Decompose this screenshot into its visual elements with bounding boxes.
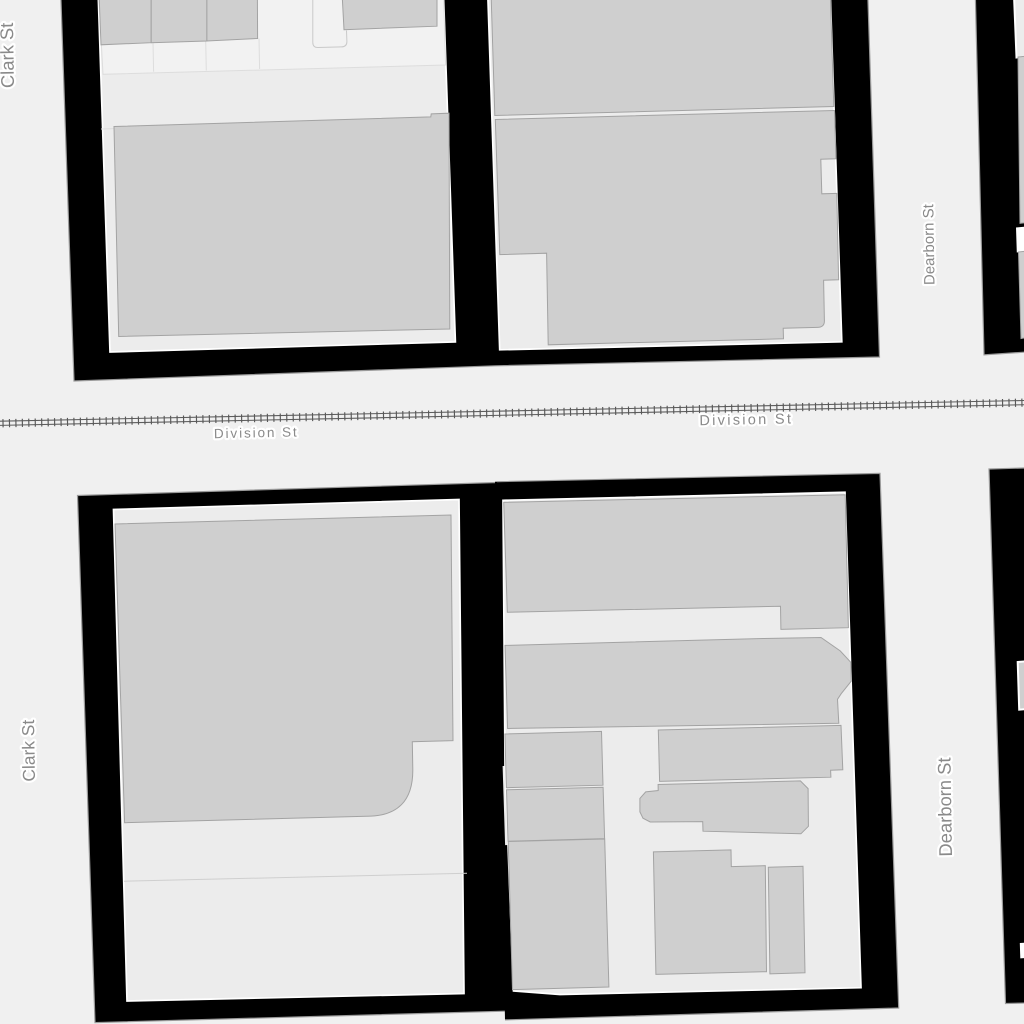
svg-text:Clark St: Clark St (0, 23, 18, 89)
svg-text:Dearborn St: Dearborn St (920, 203, 938, 285)
svg-text:Dearborn St: Dearborn St (933, 757, 956, 856)
svg-text:Clark St: Clark St (18, 719, 39, 781)
svg-text:Division St: Division St (699, 411, 793, 429)
svg-text:Division St: Division St (214, 424, 299, 441)
